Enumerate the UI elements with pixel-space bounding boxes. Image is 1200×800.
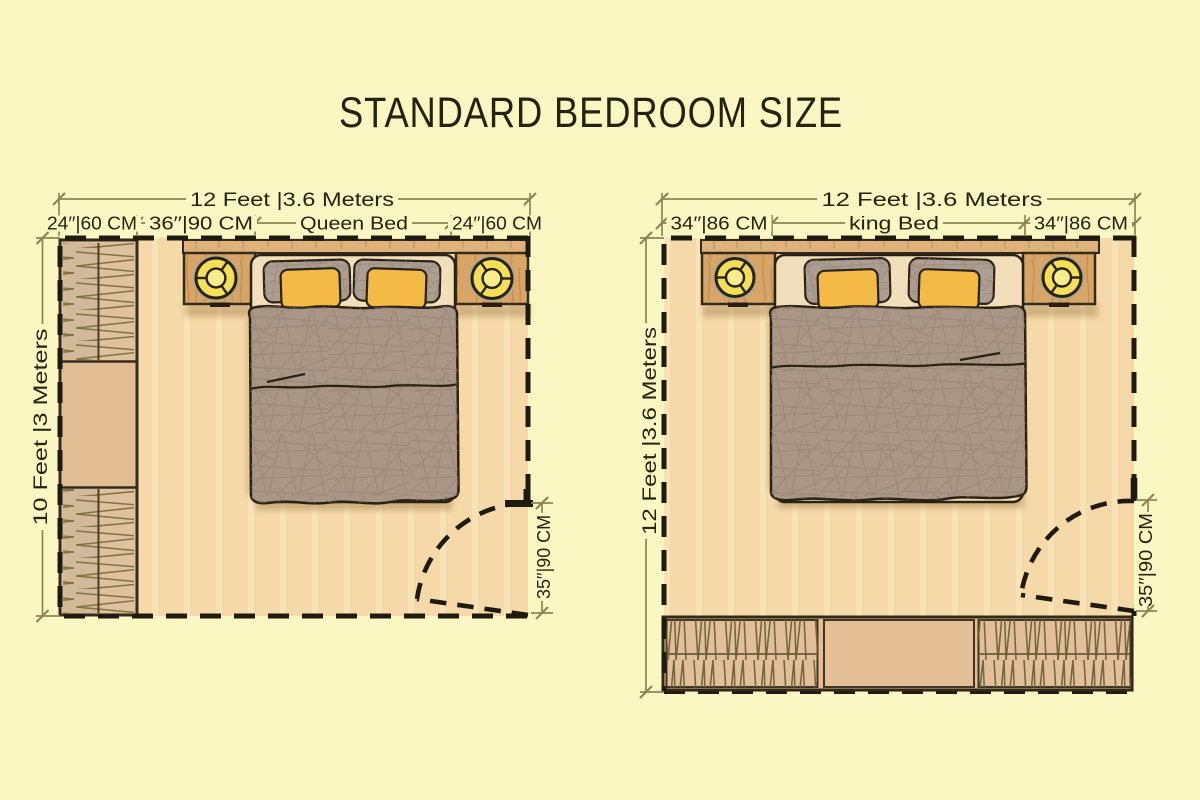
svg-text:10 Feet |3 Meters: 10 Feet |3 Meters bbox=[31, 329, 52, 526]
svg-text:Queen Bed: Queen Bed bbox=[300, 214, 408, 234]
svg-text:12 Feet |3.6 Meters: 12 Feet |3.6 Meters bbox=[822, 190, 1043, 211]
svg-text:34′′|86 CM: 34′′|86 CM bbox=[671, 214, 768, 234]
svg-text:36′′|90 CM: 36′′|90 CM bbox=[149, 214, 253, 234]
svg-text:35′′|90 CM: 35′′|90 CM bbox=[534, 515, 554, 599]
svg-text:24′′|60 CM: 24′′|60 CM bbox=[452, 214, 542, 234]
svg-text:king Bed: king Bed bbox=[849, 214, 939, 234]
svg-text:35′′|90 CM: 35′′|90 CM bbox=[1136, 513, 1156, 607]
svg-text:24′′|60 CM: 24′′|60 CM bbox=[47, 214, 137, 234]
svg-text:34′′|86 CM: 34′′|86 CM bbox=[1034, 214, 1128, 234]
svg-text:STANDARD BEDROOM SIZE: STANDARD BEDROOM SIZE bbox=[339, 89, 843, 137]
svg-text:12 Feet |3.6 Meters: 12 Feet |3.6 Meters bbox=[190, 190, 394, 211]
svg-text:12 Feet |3.6 Meters: 12 Feet |3.6 Meters bbox=[640, 327, 661, 535]
